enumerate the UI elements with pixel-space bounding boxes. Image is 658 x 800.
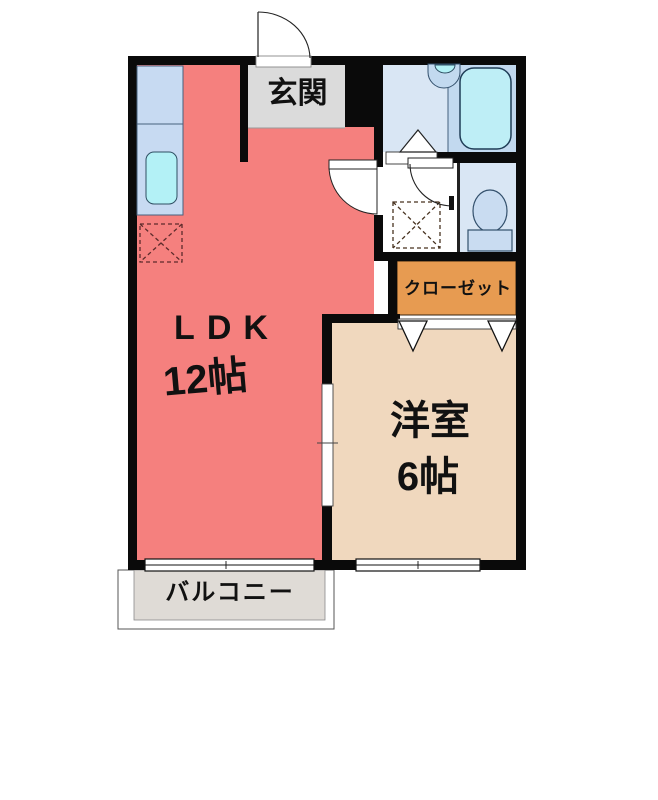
entrance-door <box>256 12 311 67</box>
wall-left <box>128 56 137 570</box>
wall-top-left <box>128 56 256 65</box>
wall-bottom-c <box>480 560 526 570</box>
kitchen-sink-icon <box>146 152 177 204</box>
floor-plan: 玄関 LDK 12帖 洋室 6帖 クローゼット バルコニー <box>0 0 658 800</box>
washroom-floor <box>383 163 457 252</box>
entrance-door-swing-arc <box>258 12 310 58</box>
ldk-label: LDK <box>152 311 302 347</box>
wall-top-right <box>311 56 526 65</box>
wall-bottom-a <box>128 560 147 570</box>
wall-ldk-washroom-upper <box>374 56 383 167</box>
wall-washroom-bottom <box>374 252 516 261</box>
toilet-partition-line <box>457 163 460 252</box>
wall-western-left-lower <box>322 506 332 560</box>
wall-bottom-b <box>313 560 356 570</box>
wall-western-left-upper <box>322 323 332 384</box>
western-room-window <box>356 559 480 571</box>
bathtub-icon <box>460 68 511 149</box>
ldk-size-label: 12帖 <box>146 353 264 405</box>
balcony-label: バルコニー <box>155 580 305 605</box>
windows <box>145 559 480 571</box>
western-room-size-label: 6帖 <box>372 456 484 498</box>
ldk-floor-lower <box>137 315 322 560</box>
ldk-window <box>145 559 314 571</box>
wall-right <box>516 56 526 570</box>
floor-plan-drawing <box>0 0 658 800</box>
entrance-label: 玄関 <box>250 78 345 110</box>
western-room-label: 洋室 <box>372 400 488 442</box>
wall-closet-left <box>388 261 397 319</box>
wall-entrance-partition <box>240 65 248 162</box>
closet-label: クローゼット <box>399 280 517 298</box>
wall-ldk-western-horizontal <box>322 314 400 323</box>
